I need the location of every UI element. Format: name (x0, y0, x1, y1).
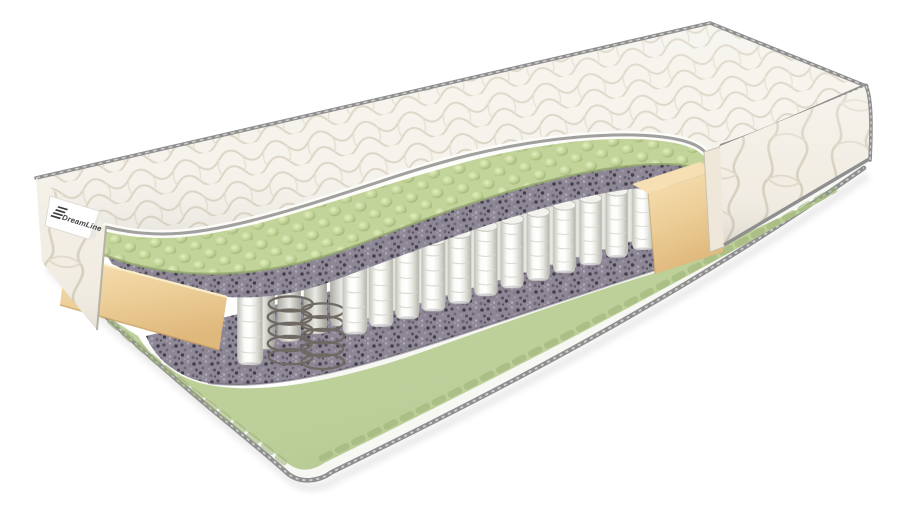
mattress-cutaway-illustration: DreamLine (0, 0, 903, 511)
product-image-canvas: DreamLine (0, 0, 903, 511)
